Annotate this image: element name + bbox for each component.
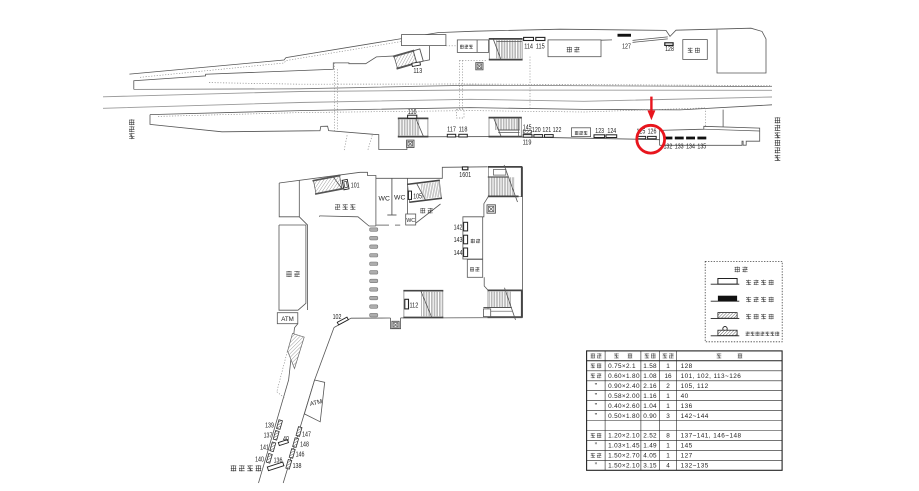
svg-text:16: 16 (664, 373, 672, 380)
svg-text:137: 137 (264, 433, 273, 440)
svg-text:0.50×1.80: 0.50×1.80 (608, 413, 640, 420)
svg-text:1.20×2.10: 1.20×2.10 (608, 433, 640, 440)
svg-text:117: 117 (447, 127, 456, 134)
svg-text:2.52: 2.52 (643, 433, 657, 440)
svg-text:119: 119 (523, 140, 532, 147)
svg-text:2.16: 2.16 (643, 383, 657, 390)
svg-text:138: 138 (293, 463, 302, 470)
svg-text:140: 140 (255, 456, 264, 463)
svg-text:144: 144 (454, 250, 463, 257)
svg-text:1: 1 (666, 453, 670, 460)
svg-text:127: 127 (622, 43, 631, 50)
svg-text:1.16: 1.16 (643, 393, 657, 400)
svg-text:101, 102, 113~126: 101, 102, 113~126 (681, 373, 742, 380)
svg-text:ATM: ATM (281, 316, 294, 323)
svg-text:0.58×2.00: 0.58×2.00 (608, 393, 640, 400)
svg-text:WC: WC (379, 196, 390, 203)
svg-text:116: 116 (408, 109, 417, 116)
svg-text:4.05: 4.05 (643, 453, 657, 460)
svg-text:115: 115 (536, 43, 545, 50)
svg-text:0.90: 0.90 (643, 413, 657, 420)
svg-text:143: 143 (454, 237, 463, 244)
svg-text:139: 139 (265, 422, 274, 429)
svg-text:1.03×1.45: 1.03×1.45 (608, 443, 640, 450)
svg-text:113: 113 (413, 68, 422, 75)
svg-text:2: 2 (666, 383, 670, 390)
svg-text:142: 142 (454, 224, 463, 231)
svg-text:1: 1 (666, 443, 670, 450)
svg-text:4: 4 (666, 463, 670, 470)
svg-text:1: 1 (666, 393, 670, 400)
svg-text:123: 123 (595, 128, 604, 135)
svg-text:146: 146 (296, 452, 305, 459)
svg-text:127: 127 (681, 453, 693, 460)
svg-text:1.50×2.10: 1.50×2.10 (608, 463, 640, 470)
svg-text:1.08: 1.08 (643, 373, 657, 380)
svg-text:132~135: 132~135 (681, 463, 709, 470)
svg-text:134: 134 (686, 144, 695, 151)
svg-text:1.50×2.70: 1.50×2.70 (608, 453, 640, 460)
svg-text:141: 141 (260, 445, 269, 452)
svg-text:WC: WC (394, 195, 405, 202)
svg-text:118: 118 (459, 127, 468, 134)
svg-text:136: 136 (274, 458, 283, 465)
svg-text:137~141, 146~148: 137~141, 146~148 (681, 433, 742, 440)
svg-text:40: 40 (681, 393, 689, 400)
svg-text:135: 135 (697, 144, 706, 151)
svg-text:1601: 1601 (459, 172, 471, 179)
svg-text:147: 147 (302, 431, 311, 438)
svg-text:40: 40 (283, 436, 289, 443)
svg-text:1: 1 (666, 363, 670, 370)
svg-text:8: 8 (666, 433, 670, 440)
svg-text:114: 114 (524, 43, 533, 50)
svg-text:133: 133 (675, 144, 684, 151)
svg-text:1.58: 1.58 (643, 363, 657, 370)
svg-text:121: 121 (542, 127, 551, 134)
svg-text:0.90×2.40: 0.90×2.40 (608, 383, 640, 390)
svg-text:3: 3 (666, 413, 670, 420)
svg-text:105: 105 (413, 193, 422, 200)
svg-text:145: 145 (681, 443, 693, 450)
svg-text:1.04: 1.04 (643, 403, 657, 410)
svg-text:148: 148 (300, 442, 309, 449)
svg-text:122: 122 (553, 127, 562, 134)
svg-text:136: 136 (681, 403, 693, 410)
svg-text:0.40×2.60: 0.40×2.60 (608, 403, 640, 410)
svg-text:124: 124 (607, 128, 616, 135)
svg-text:102: 102 (333, 314, 342, 321)
svg-text:WC: WC (406, 218, 415, 224)
svg-text:142~144: 142~144 (681, 413, 709, 420)
svg-text:145: 145 (523, 125, 532, 132)
svg-text:126: 126 (648, 128, 657, 135)
svg-text:101: 101 (351, 182, 360, 189)
svg-text:0.60×1.80: 0.60×1.80 (608, 373, 640, 380)
svg-text:128: 128 (665, 46, 674, 53)
svg-text:120: 120 (532, 127, 541, 134)
svg-text:1.49: 1.49 (643, 443, 657, 450)
svg-text:0.75×2.1: 0.75×2.1 (608, 363, 636, 370)
svg-text:128: 128 (681, 363, 693, 370)
svg-text:112: 112 (410, 303, 419, 310)
svg-text:1: 1 (666, 403, 670, 410)
svg-text:105, 112: 105, 112 (681, 383, 709, 390)
svg-text:3.15: 3.15 (643, 463, 657, 470)
